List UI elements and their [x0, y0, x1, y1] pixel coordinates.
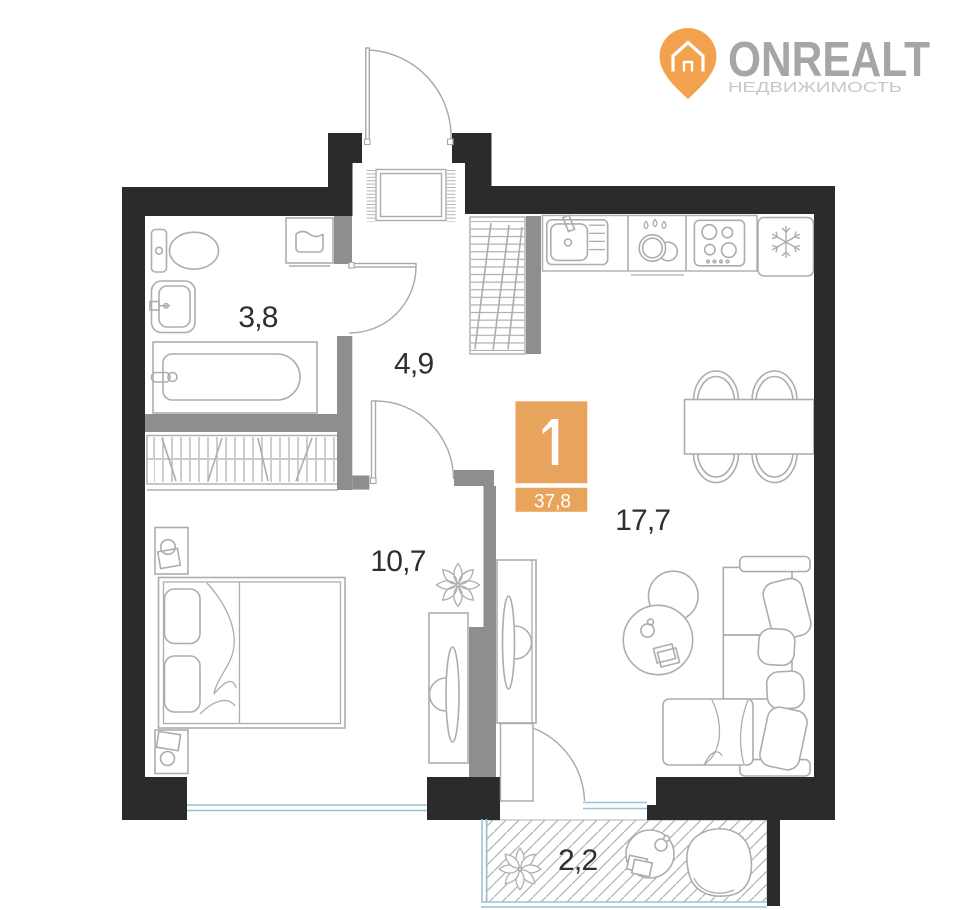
svg-text:3,8: 3,8 — [238, 301, 277, 334]
svg-text:17,7: 17,7 — [615, 504, 670, 537]
svg-text:37,8: 37,8 — [534, 492, 571, 513]
svg-text:10,7: 10,7 — [370, 545, 425, 578]
svg-text:2,2: 2,2 — [558, 844, 597, 877]
svg-text:4,9: 4,9 — [394, 348, 433, 381]
svg-text:НЕДВИЖИМОСТЬ: НЕДВИЖИМОСТЬ — [728, 79, 902, 96]
